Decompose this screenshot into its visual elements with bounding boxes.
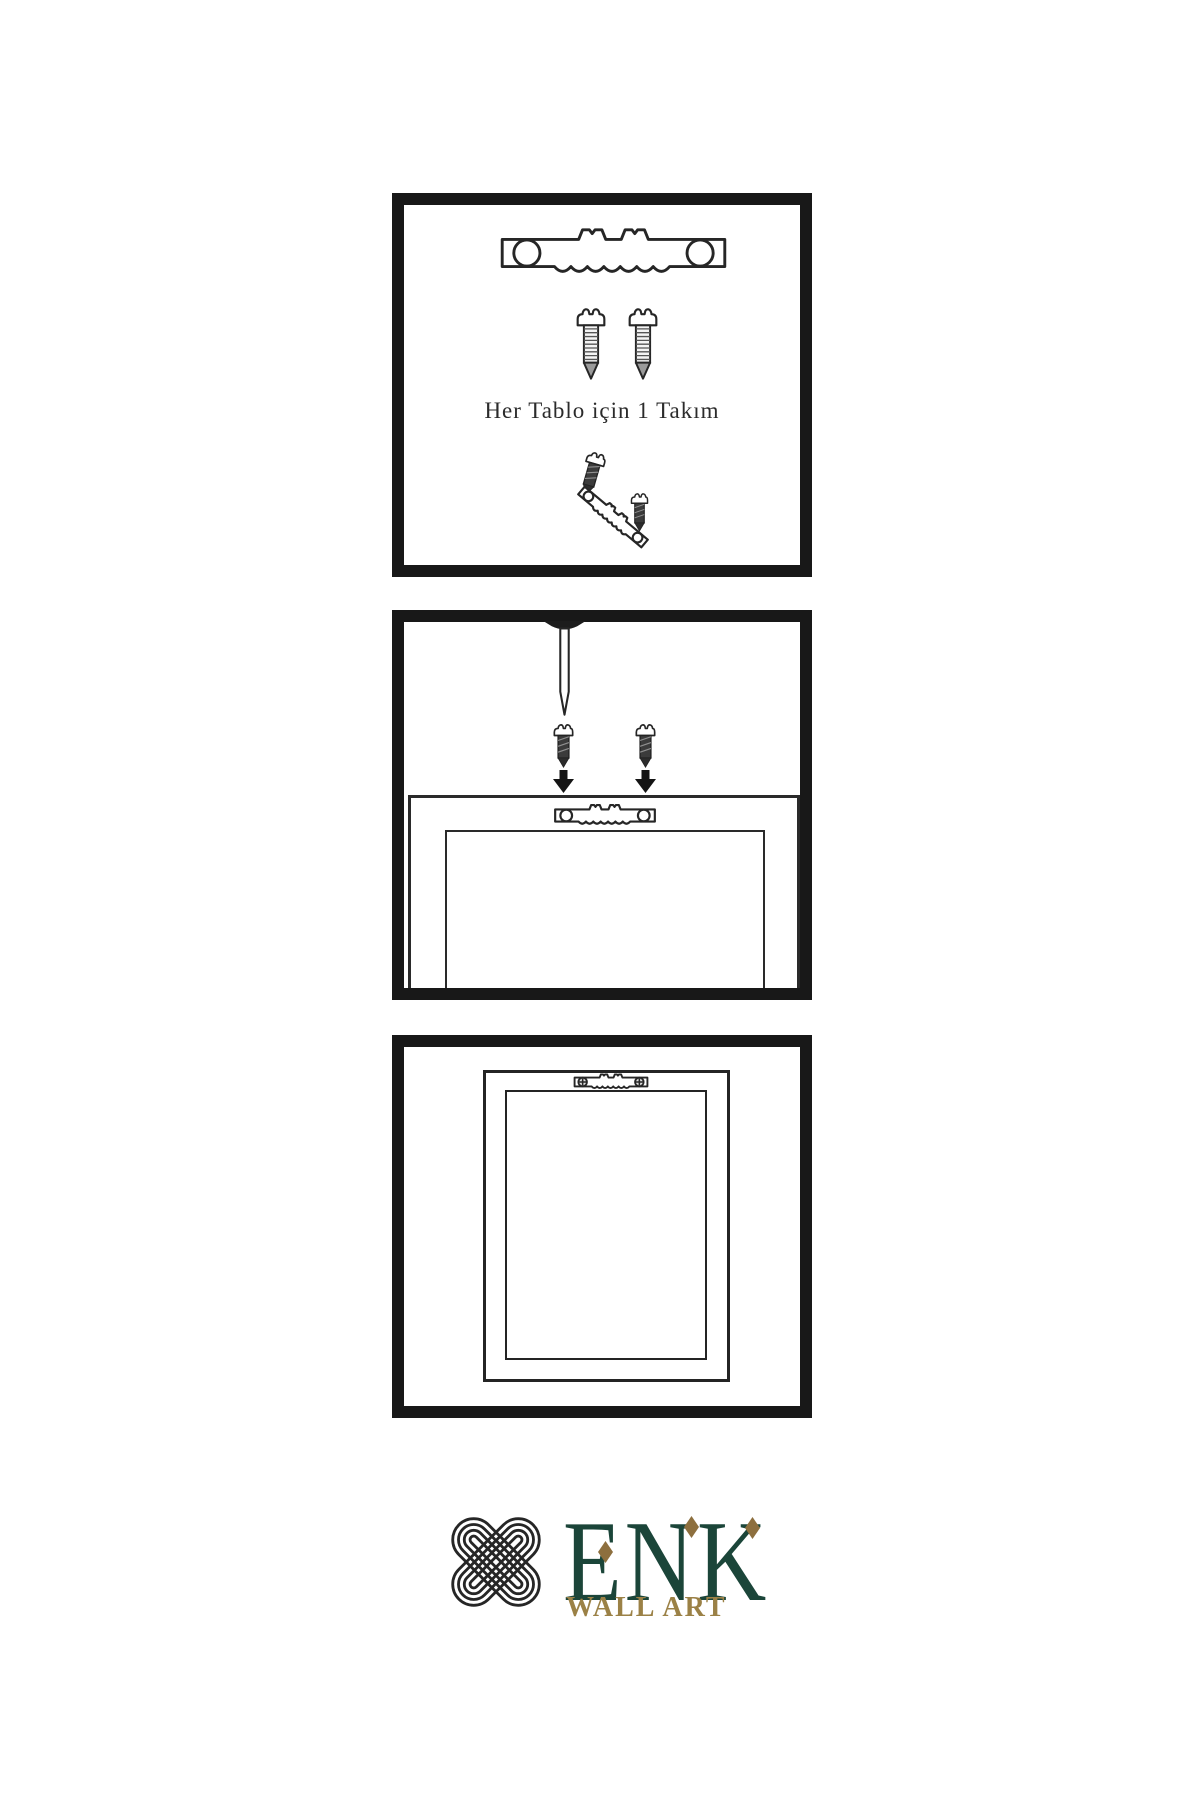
- screw-icon: [575, 305, 607, 383]
- step-1-panel: Her Tablo için 1 Takım: [392, 193, 812, 577]
- step-2-panel: [392, 610, 812, 1000]
- sawtooth-hanger-mounted-icon: [573, 1072, 649, 1092]
- knot-logo-icon: [433, 1492, 559, 1632]
- brand-subtitle: WALL ART: [566, 1592, 727, 1624]
- nail-icon: [557, 626, 572, 719]
- dark-screw-icon: [552, 723, 575, 768]
- instruction-sheet: Her Tablo için 1 Takım: [0, 0, 1200, 1800]
- picture-frame-hung-inner: [505, 1090, 707, 1360]
- down-arrow-icon: [553, 770, 574, 793]
- down-arrow-icon: [635, 770, 656, 793]
- sawtooth-hanger-icon: [497, 223, 730, 283]
- kit-caption: Her Tablo için 1 Takım: [404, 398, 800, 424]
- dark-screw-icon: [630, 492, 649, 532]
- dark-screw-icon: [634, 723, 657, 768]
- sawtooth-hanger-icon: [553, 802, 657, 829]
- step-3-panel: [392, 1035, 812, 1418]
- picture-frame-back-inner: [445, 830, 765, 988]
- screw-icon: [627, 305, 659, 383]
